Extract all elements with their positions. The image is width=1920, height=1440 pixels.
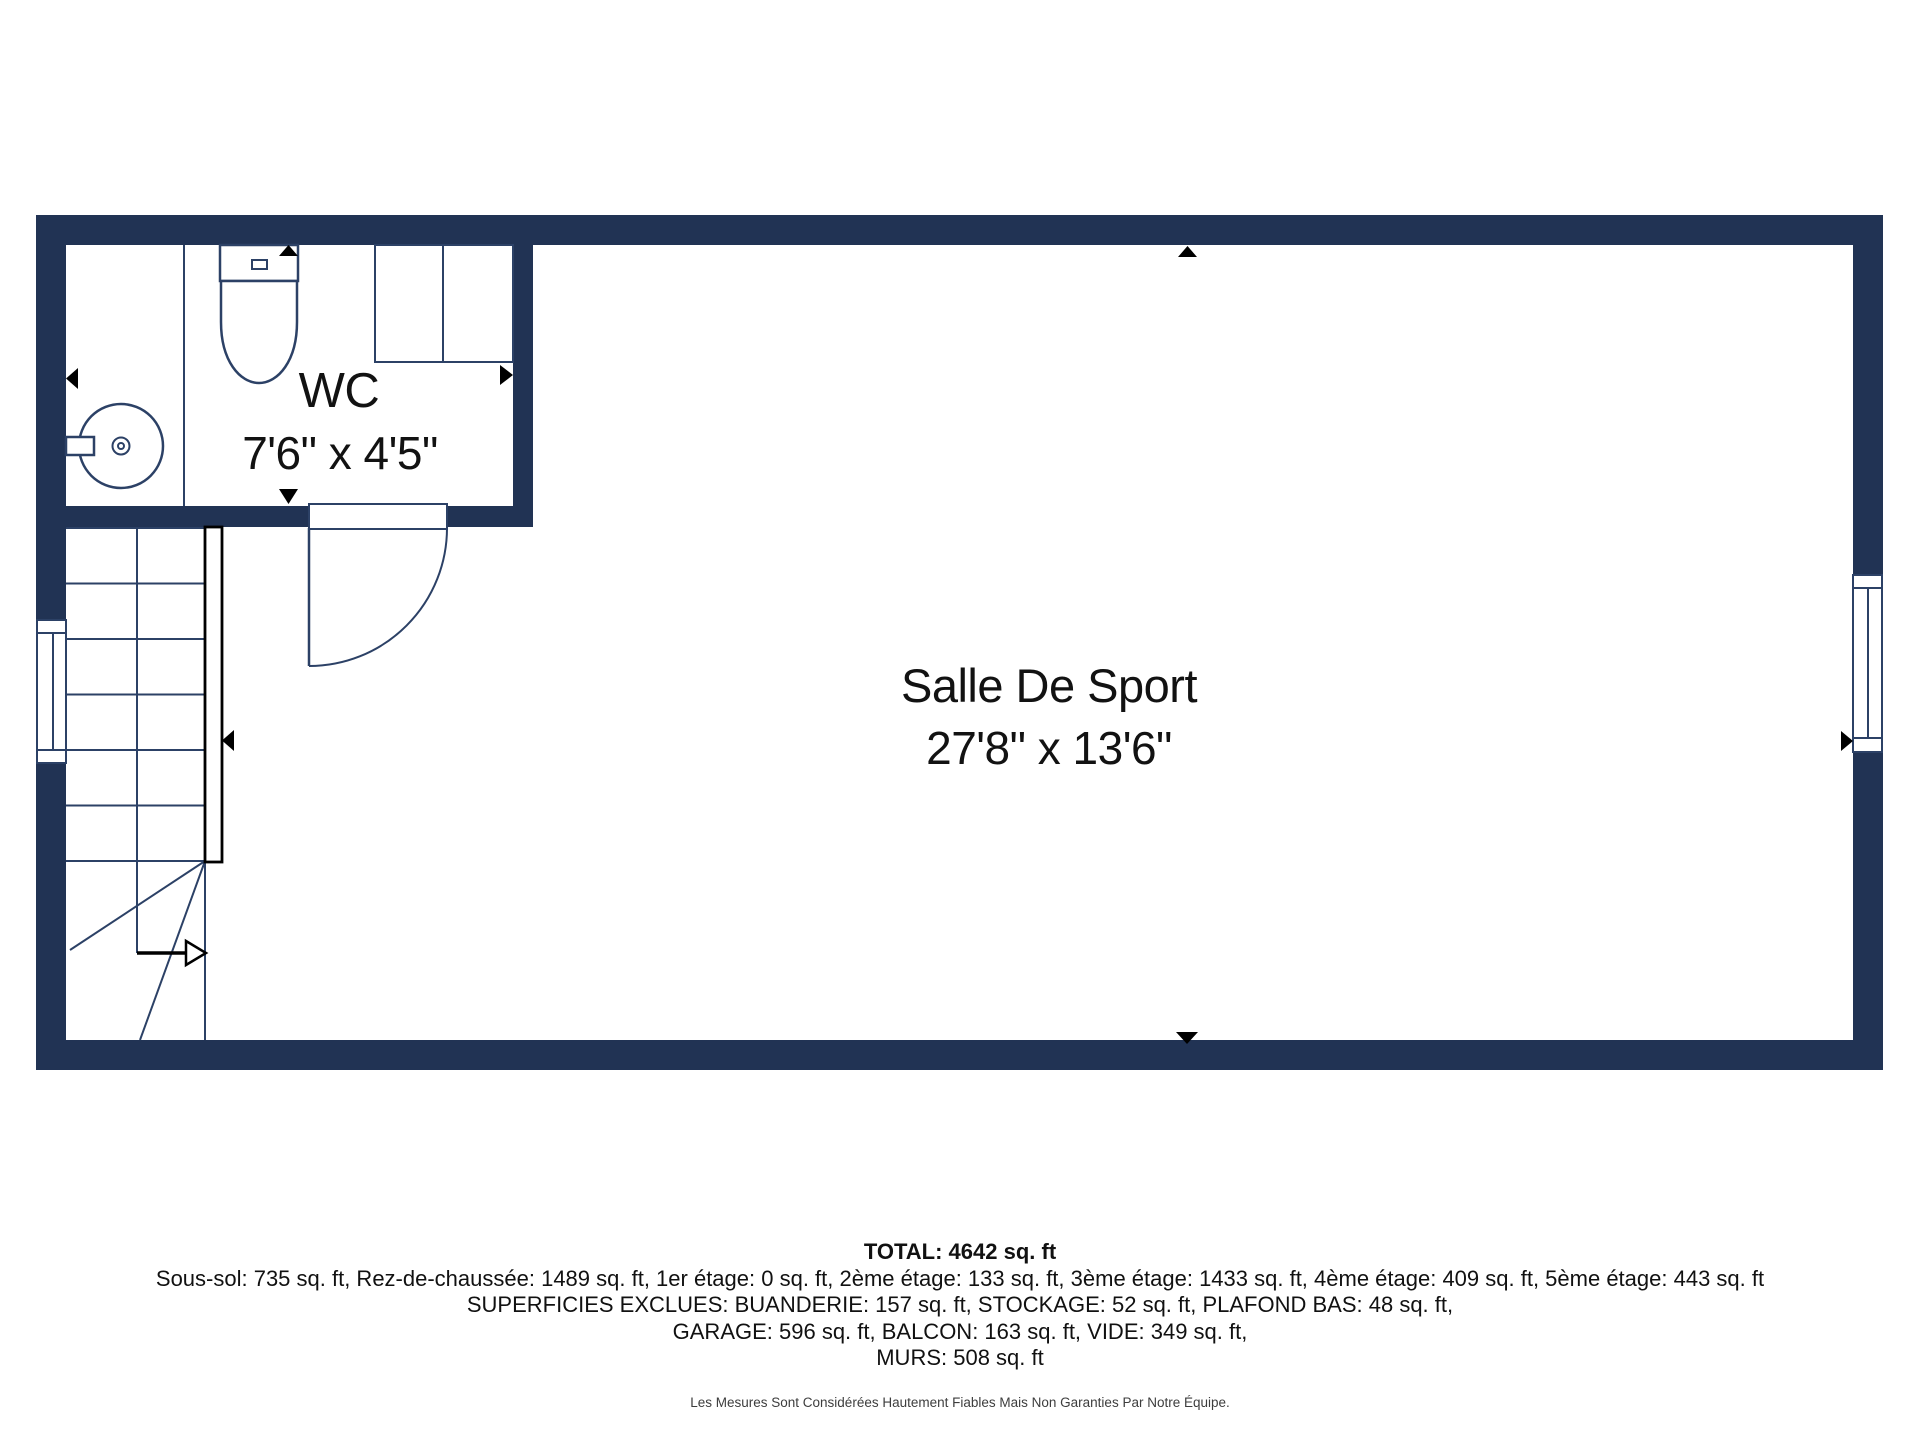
gym-room-dimensions: 27'8" x 13'6" <box>926 722 1172 774</box>
gym-room-name: Salle De Sport <box>901 659 1197 712</box>
floor-plan-drawing: WC 7'6" x 4'5" Salle De Sport 27'8" x 13… <box>0 0 1920 1440</box>
arrow-right-icon <box>500 365 513 385</box>
door-opening <box>309 504 447 529</box>
disclaimer-text: Les Mesures Sont Considérées Hautement F… <box>0 1395 1920 1410</box>
total-area-line: TOTAL: 4642 sq. ft <box>0 1239 1920 1266</box>
staircase <box>66 527 222 1040</box>
stair-direction-arrow-icon <box>137 941 206 965</box>
walls <box>36 215 1883 1070</box>
area-summary: TOTAL: 4642 sq. ft Sous-sol: 735 sq. ft,… <box>0 1239 1920 1372</box>
excluded-areas-line: SUPERFICIES EXCLUES: BUANDERIE: 157 sq. … <box>0 1292 1920 1319</box>
sink-icon <box>66 404 163 488</box>
floor-areas-line: Sous-sol: 735 sq. ft, Rez-de-chaussée: 1… <box>0 1266 1920 1293</box>
walls-area-line: MURS: 508 sq. ft <box>0 1345 1920 1372</box>
excluded-areas-line-2: GARAGE: 596 sq. ft, BALCON: 163 sq. ft, … <box>0 1319 1920 1346</box>
arrow-right-icon <box>1841 731 1853 751</box>
window-right-icon <box>1853 575 1882 752</box>
arrow-down-icon <box>279 489 298 504</box>
wall-top <box>36 215 1883 245</box>
wall-wc-right <box>513 245 533 527</box>
arrow-up-icon <box>1178 246 1197 257</box>
cabinet-icon <box>375 245 513 362</box>
window-left-icon <box>37 620 66 763</box>
toilet-icon <box>220 245 298 383</box>
floor-plan-page: WC 7'6" x 4'5" Salle De Sport 27'8" x 13… <box>0 0 1920 1440</box>
door <box>309 504 447 666</box>
arrow-left-icon <box>66 368 78 389</box>
door-swing-arc <box>309 528 447 666</box>
wall-bottom <box>36 1040 1883 1070</box>
arrow-left-icon <box>222 730 234 751</box>
wc-room-name: WC <box>299 364 380 418</box>
wc-room-dimensions: 7'6" x 4'5" <box>242 427 438 479</box>
wall-wc-bottom <box>66 506 533 527</box>
stair-handrail <box>205 527 222 862</box>
